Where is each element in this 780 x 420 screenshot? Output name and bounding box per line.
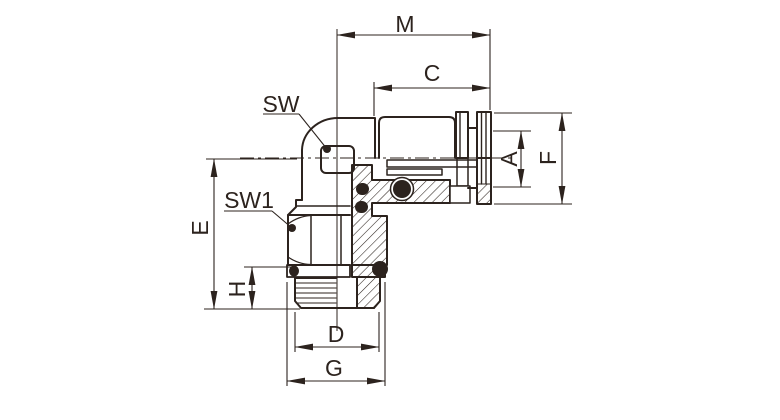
fitting-body-group: [287, 112, 491, 308]
bore-seal-icon: [356, 183, 369, 195]
thread-crest-lines: [295, 283, 336, 303]
technical-drawing-canvas: M C SW SW1 E H A F D G: [0, 0, 780, 420]
o-ring-icon: [393, 180, 411, 198]
leader-sw-dot: [323, 145, 331, 153]
sleeve-end-ring: [456, 112, 468, 158]
thread-o-ring-icon: [372, 261, 388, 277]
collet-finger-short: [387, 169, 442, 175]
bore-seal-icon: [355, 201, 368, 213]
dim-label-e: E: [187, 220, 213, 235]
thread-section-hatched: [357, 277, 380, 308]
dim-label-h: H: [224, 281, 250, 298]
dim-label-f: F: [535, 151, 561, 165]
leader-sw1-dot: [288, 224, 296, 232]
release-collar-upper: [477, 112, 491, 158]
elbow-fitting-drawing: M C SW SW1 E H A F D G: [0, 0, 780, 420]
hex-chamfer-arcs: [288, 216, 311, 265]
collet-step: [450, 186, 470, 203]
callout-label-sw: SW: [262, 91, 299, 117]
dim-label-a: A: [496, 151, 522, 167]
dim-label-c: C: [424, 60, 441, 86]
dim-label-g: G: [325, 355, 343, 381]
collet-finger-long: [387, 160, 484, 167]
dim-label-m: M: [395, 11, 414, 37]
callout-label-sw1: SW1: [224, 187, 274, 213]
neck-step: [288, 200, 302, 215]
dim-label-d: D: [328, 321, 345, 347]
collar-lower-hatched: [477, 184, 491, 204]
cartridge-sleeve-outline: [379, 117, 455, 158]
